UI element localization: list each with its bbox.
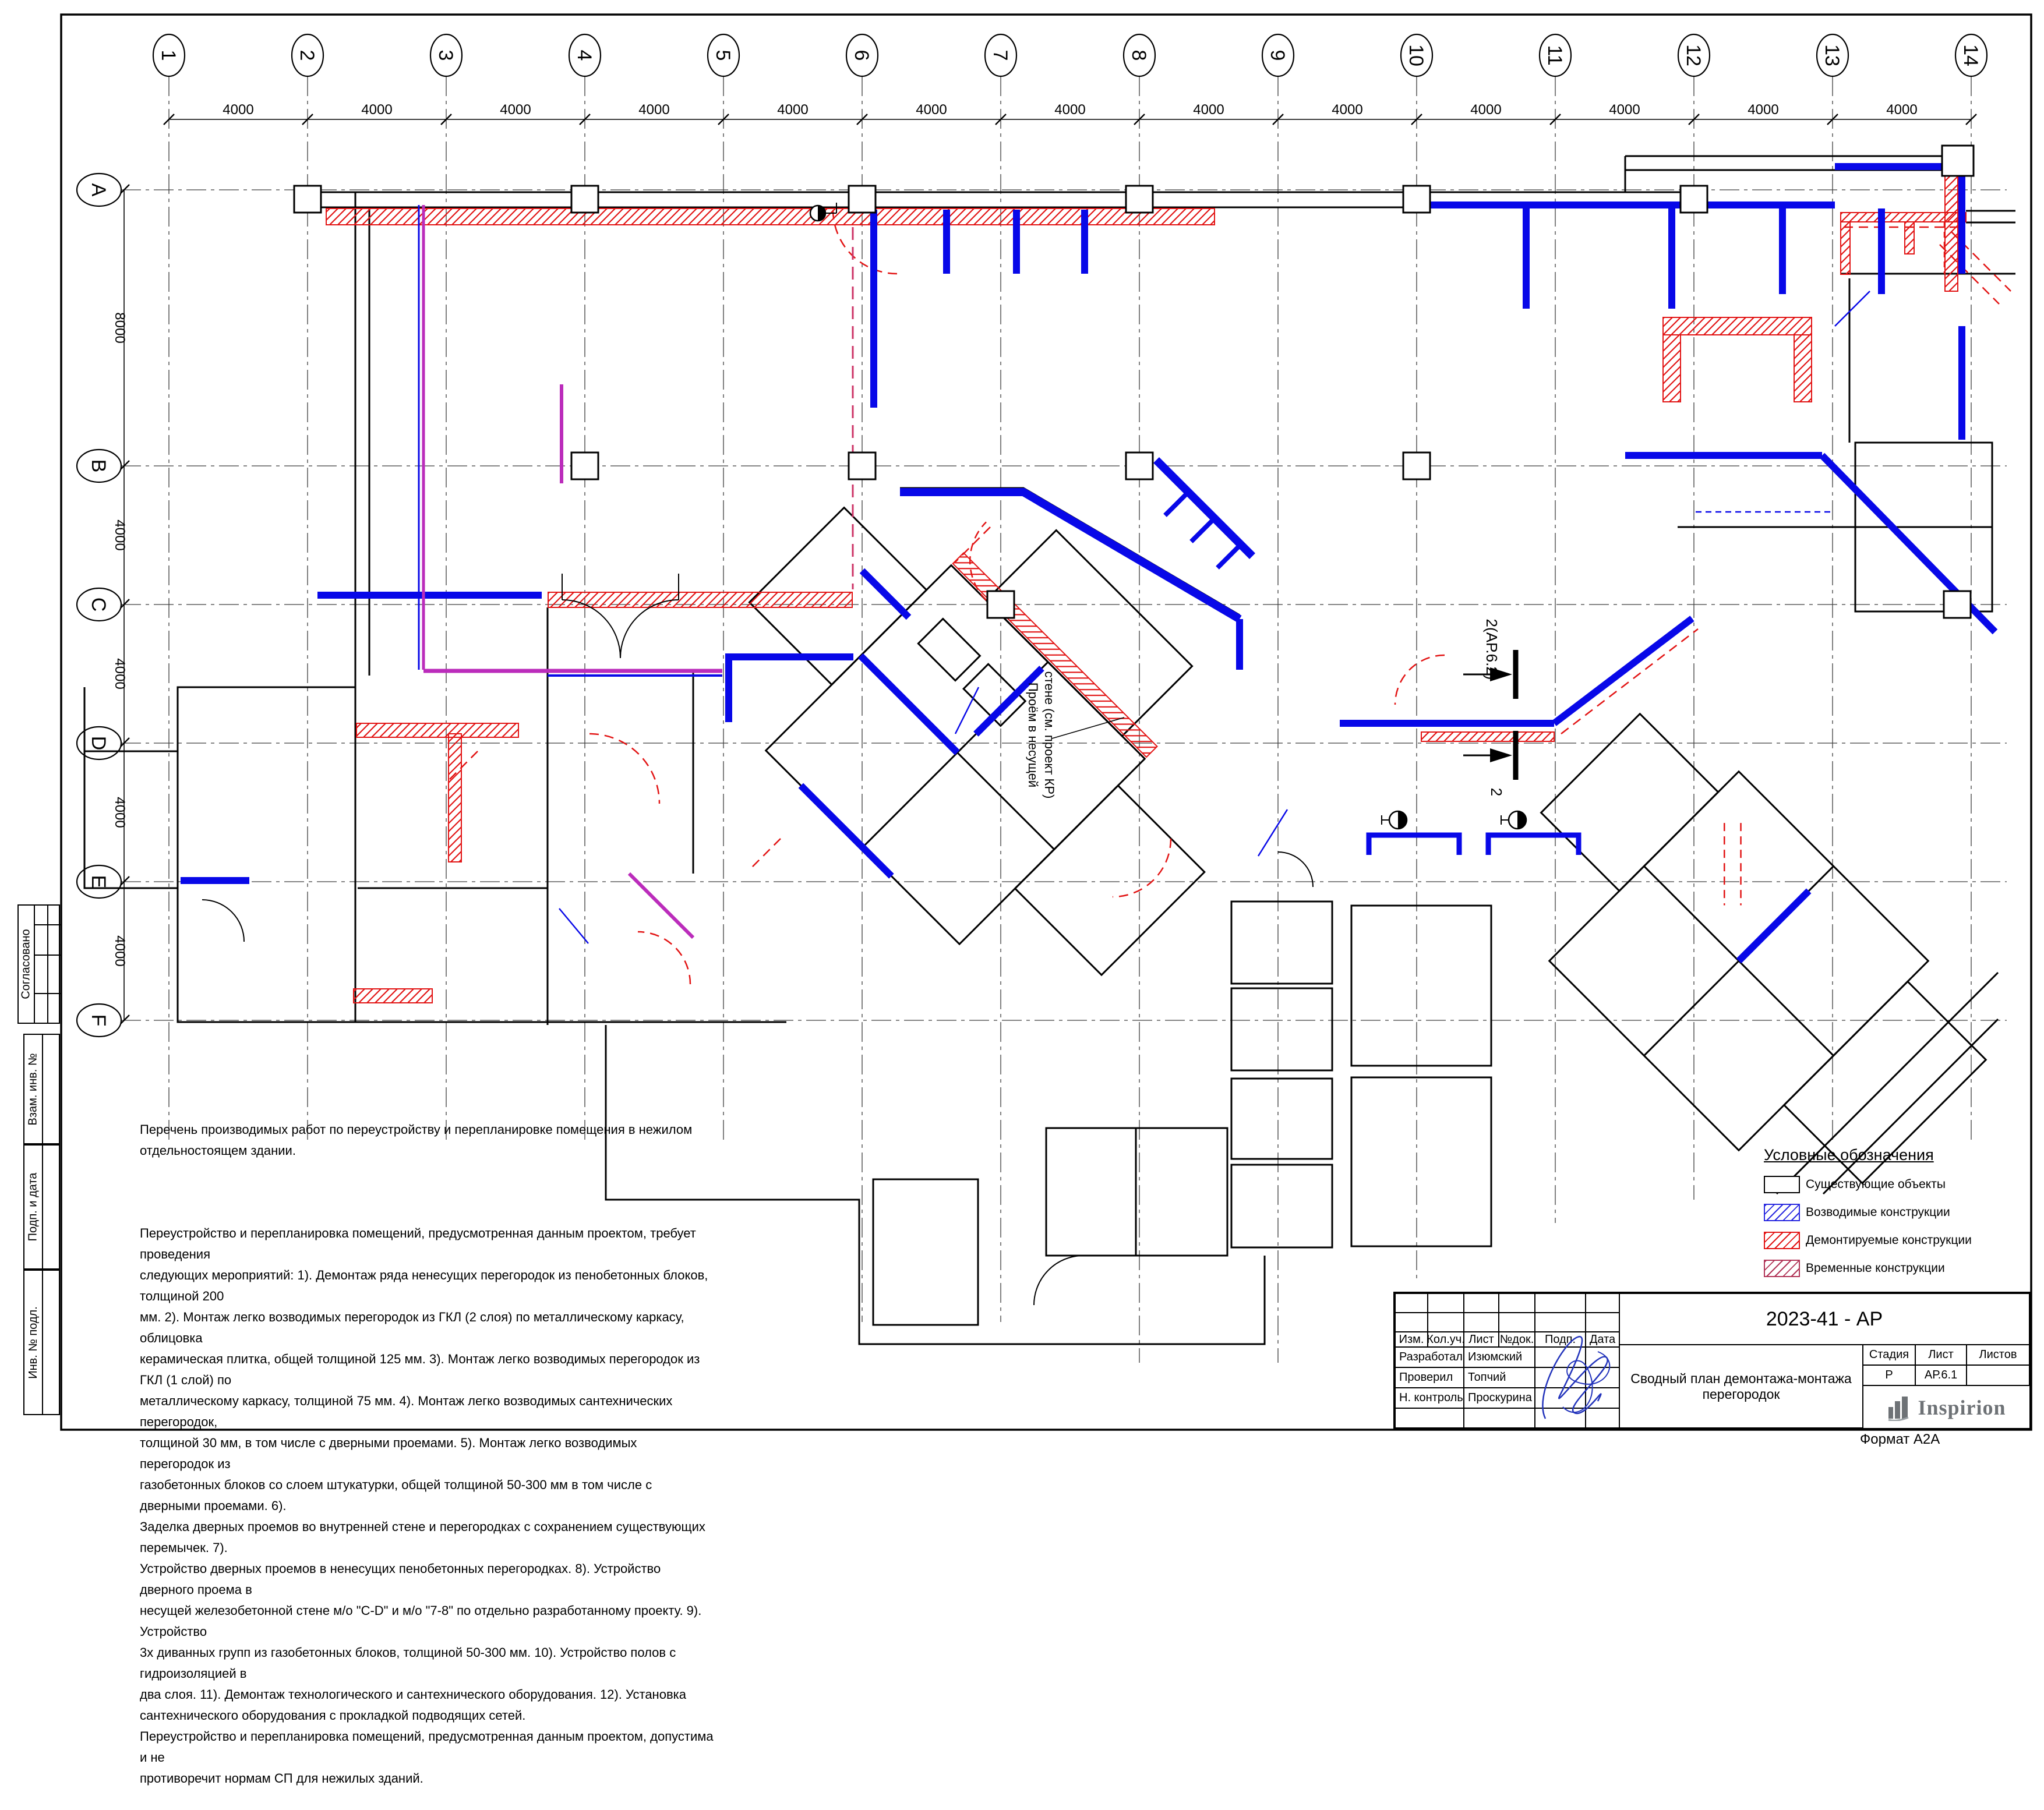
dim-value: 4000 xyxy=(1470,102,1501,118)
dim-value: 4000 xyxy=(112,797,128,828)
dim-value: 4000 xyxy=(916,102,947,118)
grid-row-label: F xyxy=(87,1014,110,1027)
sheet-number: АР.6.1 xyxy=(1915,1365,1967,1385)
dim-value: 4000 xyxy=(1886,102,1917,118)
dim-value: 4000 xyxy=(1054,102,1085,118)
central-diagonal-rooms xyxy=(683,413,1301,1031)
legend-item-label: Временные конструкции xyxy=(1806,1261,1945,1275)
legend-item-demolish: Демонтируемые конструкции xyxy=(1764,1231,2008,1250)
dim-value: 4000 xyxy=(223,102,253,118)
dim-value: 4000 xyxy=(1332,102,1362,118)
grid-column-label: 14 xyxy=(1960,44,1982,66)
document-code: 2023-41 - АР xyxy=(1619,1293,2029,1345)
rev-header: Изм. xyxy=(1395,1332,1428,1347)
dim-value: 4000 xyxy=(112,658,128,689)
new-construction-swatch xyxy=(1764,1204,1800,1221)
role-label: Разработал xyxy=(1395,1347,1464,1367)
grid-row-label: D xyxy=(87,736,110,751)
grid-column-label: 12 xyxy=(1682,44,1704,66)
opening-annotation: Проём в несущей стене (см. проект КР) xyxy=(1026,671,1124,799)
sheets-total-value xyxy=(1967,1365,2029,1385)
top-dimension-values: 4000 4000 4000 4000 4000 4000 4000 4000 … xyxy=(223,102,1917,118)
title-block: Изм. Кол.уч. Лист №док. Подп. Дата Разра… xyxy=(1393,1292,2031,1430)
notes-heading: Перечень производимых работ по переустро… xyxy=(140,1119,714,1161)
grid-column-label: 10 xyxy=(1405,44,1427,66)
work-notes: Перечень производимых работ по переустро… xyxy=(140,1098,714,1810)
legend-item-label: Демонтируемые конструкции xyxy=(1806,1233,1972,1247)
left-dimension-values: 8000 4000 4000 4000 4000 xyxy=(112,312,128,966)
grid-column-label: 5 xyxy=(712,50,734,61)
logo-text: Inspirion xyxy=(1918,1395,2006,1420)
dim-value: 4000 xyxy=(1193,102,1224,118)
dim-value: 4000 xyxy=(777,102,808,118)
role-name: Топчий xyxy=(1464,1367,1535,1388)
legend-item-existing: Существующие объекты xyxy=(1764,1175,2008,1194)
rev-header: Кол.уч. xyxy=(1428,1332,1464,1347)
dim-value: 4000 xyxy=(638,102,669,118)
dim-value: 4000 xyxy=(500,102,531,118)
signature-scribble xyxy=(1528,1325,1633,1430)
grid-row-label: E xyxy=(87,875,110,889)
stamp-inv-no-box: Инв. № подл. xyxy=(23,1270,60,1415)
format-label: Формат А2А xyxy=(1860,1431,1940,1448)
demolition-swatch xyxy=(1764,1232,1800,1249)
stage-value: Р xyxy=(1863,1365,1915,1385)
grid-row-label: B xyxy=(87,459,110,473)
dim-value: 4000 xyxy=(112,519,128,550)
legend-item-new: Возводимые конструкции xyxy=(1764,1203,2008,1222)
grid-column-label: 9 xyxy=(1266,50,1288,61)
grid-column-bubbles xyxy=(153,34,1987,76)
dim-value: 8000 xyxy=(112,312,128,343)
section-number: 2 xyxy=(1488,788,1505,796)
stage-header: Стадия xyxy=(1863,1345,1915,1365)
stamp-replace-inv-label: Взам. инв. № xyxy=(27,1053,40,1125)
stamp-approved-label: Согласовано xyxy=(20,929,33,999)
grid-column-label: 2 xyxy=(296,50,318,61)
grid-row-label: A xyxy=(87,183,110,197)
opening-note-line1: Проём в несущей xyxy=(1026,683,1040,787)
grid-column-label: 11 xyxy=(1544,45,1566,65)
drawing-sheet: { "sheet": { "format_label": "Формат А2А… xyxy=(0,0,2044,1445)
stamp-inv-no-label: Инв. № подл. xyxy=(27,1306,40,1379)
role-label: Н. контроль xyxy=(1395,1388,1464,1408)
logo-building-icon xyxy=(1887,1394,1911,1421)
notes-body: Переустройство и перепланировка помещени… xyxy=(140,1223,714,1789)
demolition-hatch xyxy=(326,169,1966,1003)
grid-column-label: 3 xyxy=(435,50,457,61)
dim-value: 4000 xyxy=(112,935,128,966)
stamp-sign-date-box: Подп. и дата xyxy=(23,1144,60,1270)
legend: Условные обозначения Существующие объект… xyxy=(1764,1146,2008,1286)
role-name: Проскурина xyxy=(1464,1388,1535,1408)
plumbing-symbols xyxy=(810,203,1526,829)
grid-column-label: 7 xyxy=(989,50,1011,61)
grid-column-label: 13 xyxy=(1821,44,1843,66)
grid-row-label: C xyxy=(87,598,110,612)
grid-row-labels: A B C D E F xyxy=(87,183,110,1027)
grid-column-label: 1 xyxy=(157,50,179,61)
role-label: Проверил xyxy=(1395,1367,1464,1388)
magenta-lines xyxy=(419,205,722,938)
legend-item-label: Существующие объекты xyxy=(1806,1178,1946,1192)
dim-value: 4000 xyxy=(1748,102,1778,118)
sheet-header: Лист xyxy=(1915,1345,1967,1365)
section-marks: 2(АР.6.2) 2 xyxy=(1463,619,1516,797)
role-name: Изюмский xyxy=(1464,1347,1535,1367)
stamp-approved-box: Согласовано xyxy=(17,904,60,1024)
dim-value: 4000 xyxy=(361,102,392,118)
temporary-swatch xyxy=(1764,1260,1800,1277)
dim-value: 4000 xyxy=(1609,102,1640,118)
existing-swatch xyxy=(1764,1176,1800,1193)
stamp-sign-date-label: Подп. и дата xyxy=(27,1173,40,1242)
rev-header: Лист xyxy=(1464,1332,1499,1347)
legend-item-temporary: Временные конструкции xyxy=(1764,1258,2008,1278)
stamp-replace-inv-box: Взам. инв. № xyxy=(23,1034,60,1144)
sheet-title: Сводный план демонтажа-монтажа перегород… xyxy=(1619,1345,1863,1428)
opening-note-line2: стене (см. проект КР) xyxy=(1042,671,1057,799)
grid-column-label: 8 xyxy=(1128,50,1150,61)
company-logo: Inspirion xyxy=(1863,1385,2031,1429)
grid-column-label: 6 xyxy=(850,50,873,61)
legend-title: Условные обозначения xyxy=(1764,1146,2008,1164)
legend-item-label: Возводимые конструкции xyxy=(1806,1206,1950,1219)
grid-column-label: 4 xyxy=(573,50,595,61)
sheets-total-header: Листов xyxy=(1967,1345,2029,1365)
section-label: 2(АР.6.2) xyxy=(1483,619,1501,680)
